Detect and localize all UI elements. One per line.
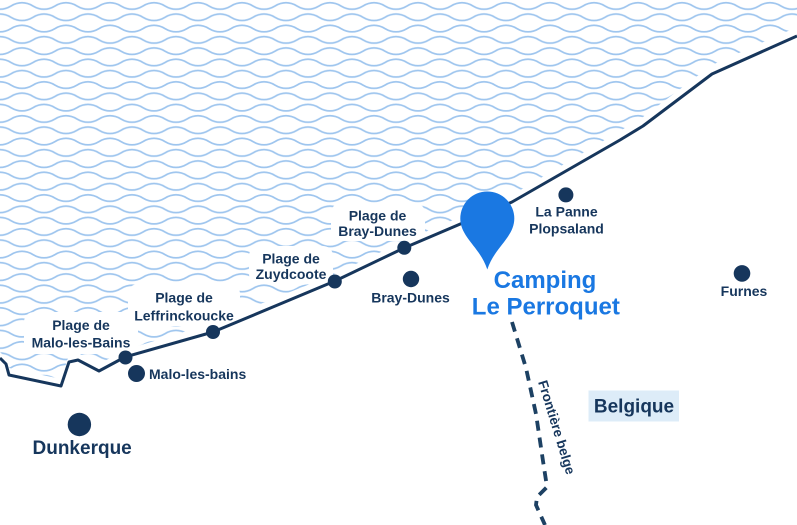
svg-text:Bray-Dunes: Bray-Dunes: [338, 223, 417, 239]
svg-text:Le Perroquet: Le Perroquet: [472, 294, 620, 321]
svg-text:Furnes: Furnes: [721, 283, 768, 299]
svg-text:Bray-Dunes: Bray-Dunes: [371, 290, 450, 306]
svg-text:Plage de: Plage de: [349, 208, 407, 224]
svg-text:Malo-les-Bains: Malo-les-Bains: [32, 335, 131, 351]
svg-text:Plage de: Plage de: [262, 251, 320, 267]
svg-text:Dunkerque: Dunkerque: [33, 438, 132, 459]
svg-text:Leffrinckoucke: Leffrinckoucke: [134, 308, 234, 324]
svg-text:Zuydcoote: Zuydcoote: [256, 266, 327, 282]
svg-text:Belgique: Belgique: [594, 397, 674, 418]
svg-text:Plage de: Plage de: [52, 317, 110, 333]
svg-text:Plage de: Plage de: [155, 290, 213, 306]
svg-text:La Panne: La Panne: [535, 204, 597, 220]
svg-text:Malo-les-bains: Malo-les-bains: [149, 366, 246, 382]
svg-text:Plopsaland: Plopsaland: [529, 221, 604, 237]
svg-text:Camping: Camping: [494, 267, 597, 294]
